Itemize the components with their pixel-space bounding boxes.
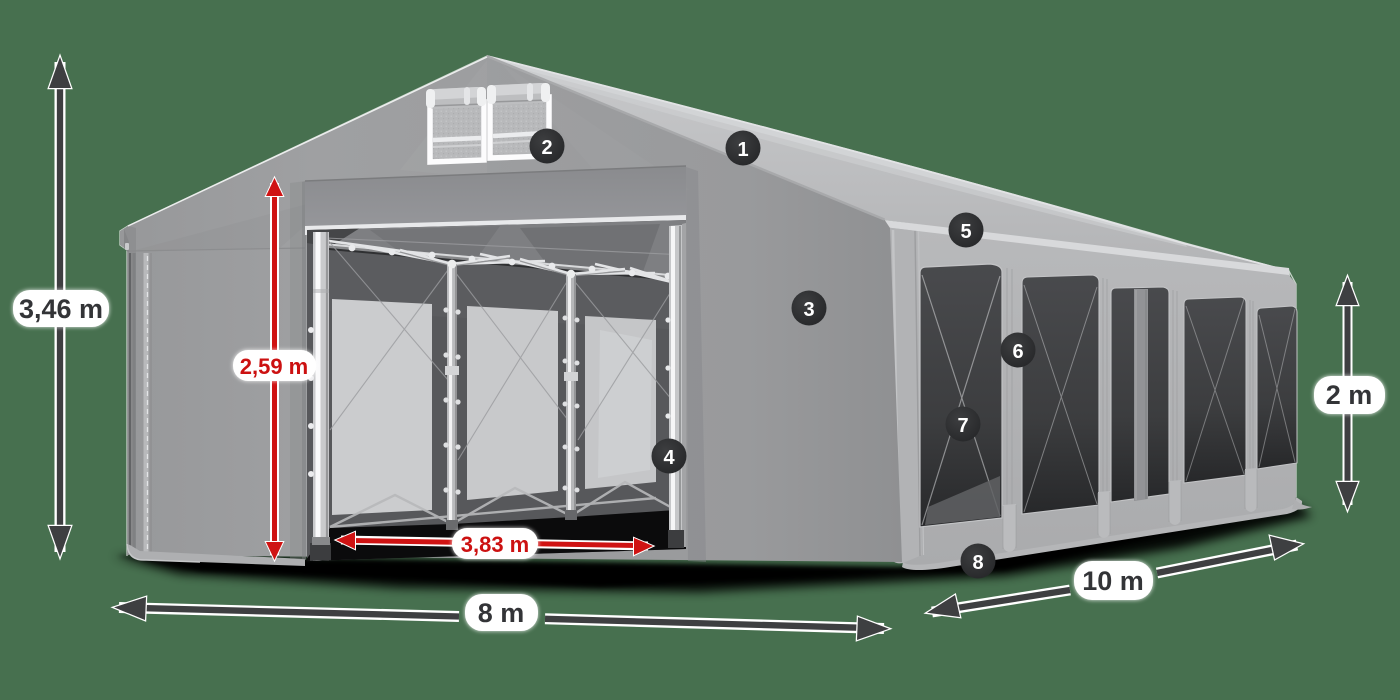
svg-text:2 m: 2 m [1326,380,1373,410]
svg-text:3,83 m: 3,83 m [461,532,530,557]
svg-text:2,59 m: 2,59 m [240,354,309,379]
svg-text:4: 4 [663,447,675,469]
svg-text:8: 8 [972,552,983,574]
svg-text:10 m: 10 m [1082,566,1144,596]
svg-text:1: 1 [737,139,748,161]
svg-text:8 m: 8 m [478,598,525,628]
svg-text:6: 6 [1012,341,1023,363]
svg-text:5: 5 [960,221,971,243]
svg-text:3,46 m: 3,46 m [19,294,103,324]
svg-text:7: 7 [957,415,968,437]
svg-text:2: 2 [541,137,552,159]
svg-text:3: 3 [803,299,814,321]
